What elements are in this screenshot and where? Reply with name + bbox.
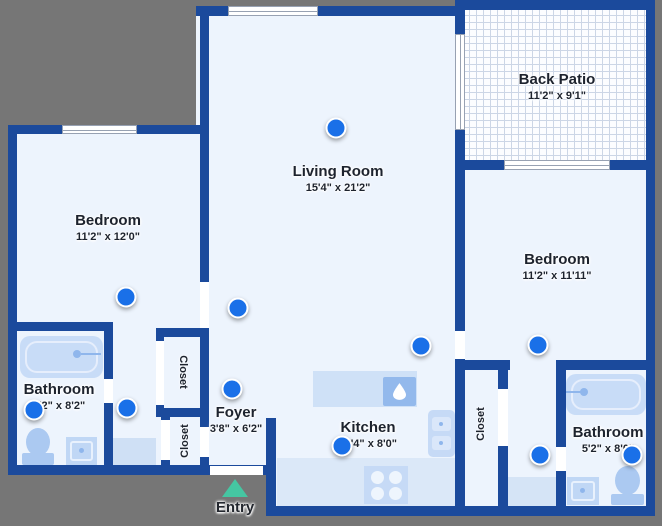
wall bbox=[556, 360, 655, 370]
kitchen-sink bbox=[383, 377, 416, 406]
wall bbox=[266, 506, 655, 516]
photo-marker[interactable] bbox=[411, 336, 432, 357]
room-label-bedroom-left: Bedroom 11'2" x 12'0" bbox=[75, 212, 141, 243]
room-dimensions: 11'2" x 9'1" bbox=[519, 90, 596, 102]
photo-marker[interactable] bbox=[116, 287, 137, 308]
fridge-handle-icon bbox=[439, 441, 443, 445]
refrigerator bbox=[428, 410, 455, 457]
floor-plan-canvas: Back Patio 11'2" x 9'1" Living Room 15'4… bbox=[0, 0, 662, 526]
door-opening-entry bbox=[210, 466, 263, 475]
closet-label-upper-left: Closet bbox=[177, 355, 189, 389]
stove bbox=[364, 466, 408, 504]
door-opening-bedroom-left bbox=[200, 282, 209, 328]
burner-icon bbox=[389, 471, 402, 484]
door-opening-closet-lower-left bbox=[161, 420, 170, 460]
room-label-bedroom-right: Bedroom 11'2" x 11'11" bbox=[523, 251, 592, 282]
room-name: Bedroom bbox=[75, 212, 141, 229]
door-opening-bathroom-left bbox=[104, 379, 113, 403]
photo-marker[interactable] bbox=[332, 436, 353, 457]
window-bedroom-left bbox=[62, 125, 137, 134]
room-name: Bathroom bbox=[573, 424, 644, 441]
bathtub-right bbox=[566, 374, 646, 415]
photo-marker[interactable] bbox=[528, 335, 549, 356]
entry-label: Entry bbox=[216, 499, 254, 516]
room-label-living-room: Living Room 15'4" x 21'2" bbox=[293, 163, 384, 194]
room-name: Foyer bbox=[210, 404, 262, 421]
wall bbox=[266, 418, 276, 516]
closet-label-right: Closet bbox=[475, 407, 487, 441]
room-label-back-patio: Back Patio 11'2" x 9'1" bbox=[519, 71, 596, 102]
door-opening-closet-right bbox=[498, 389, 508, 446]
vanity-cabinet-right bbox=[567, 477, 599, 505]
room-name: Bedroom bbox=[523, 251, 592, 268]
wall bbox=[200, 6, 209, 475]
room-name: Living Room bbox=[293, 163, 384, 180]
hallway-right-counter bbox=[508, 477, 556, 506]
bathtub-rim bbox=[25, 341, 98, 373]
fridge-handle-icon bbox=[439, 422, 443, 426]
room-dimensions: 11'2" x 11'11" bbox=[523, 270, 592, 282]
door-opening-bathroom-right bbox=[556, 447, 566, 471]
door-opening-bedroom-right bbox=[455, 331, 465, 359]
room-name: Bathroom bbox=[24, 381, 95, 398]
burner-icon bbox=[371, 487, 384, 500]
cabinet-knob-icon bbox=[580, 488, 585, 493]
toilet-left-bowl bbox=[26, 428, 50, 456]
photo-marker[interactable] bbox=[530, 445, 551, 466]
sliding-door-patio-bedroom bbox=[504, 160, 610, 170]
bathtub-left bbox=[20, 336, 103, 378]
bathtub-faucet-icon bbox=[566, 391, 582, 393]
burner-icon bbox=[389, 487, 402, 500]
wall bbox=[8, 125, 17, 475]
wall bbox=[455, 0, 655, 10]
photo-marker[interactable] bbox=[117, 398, 138, 419]
wall bbox=[8, 322, 113, 331]
door-opening-closet-upper-left bbox=[156, 341, 164, 405]
room-name: Back Patio bbox=[519, 71, 596, 88]
toilet-right-tank bbox=[611, 494, 644, 505]
window-living-room bbox=[228, 6, 318, 16]
toilet-left-tank bbox=[22, 453, 54, 465]
entry-arrow-icon bbox=[222, 479, 248, 497]
photo-marker[interactable] bbox=[326, 118, 347, 139]
toilet-right-bowl bbox=[615, 466, 640, 495]
wall bbox=[556, 360, 566, 506]
closet-label-lower-left: Closet bbox=[179, 424, 191, 458]
door-opening-foyer-closet bbox=[200, 427, 209, 457]
photo-marker[interactable] bbox=[24, 400, 45, 421]
wall bbox=[646, 0, 655, 516]
photo-marker[interactable] bbox=[228, 298, 249, 319]
room-label-foyer: Foyer 3'8" x 6'2" bbox=[210, 404, 262, 435]
photo-marker[interactable] bbox=[222, 379, 243, 400]
room-dimensions: 3'8" x 6'2" bbox=[210, 423, 262, 435]
sliding-door-patio bbox=[455, 34, 465, 130]
water-drop-icon bbox=[393, 383, 406, 400]
room-dimensions: 15'4" x 21'2" bbox=[293, 182, 384, 194]
photo-marker[interactable] bbox=[622, 445, 643, 466]
bathtub-drain-icon bbox=[73, 350, 81, 358]
vanity-cabinet-left bbox=[66, 437, 97, 465]
hallway-left-counter bbox=[113, 438, 156, 465]
bathtub-faucet-icon bbox=[81, 353, 101, 355]
room-name: Kitchen bbox=[339, 419, 397, 436]
room-dimensions: 11'2" x 12'0" bbox=[75, 231, 141, 243]
burner-icon bbox=[371, 471, 384, 484]
cabinet-knob-icon bbox=[79, 448, 84, 453]
